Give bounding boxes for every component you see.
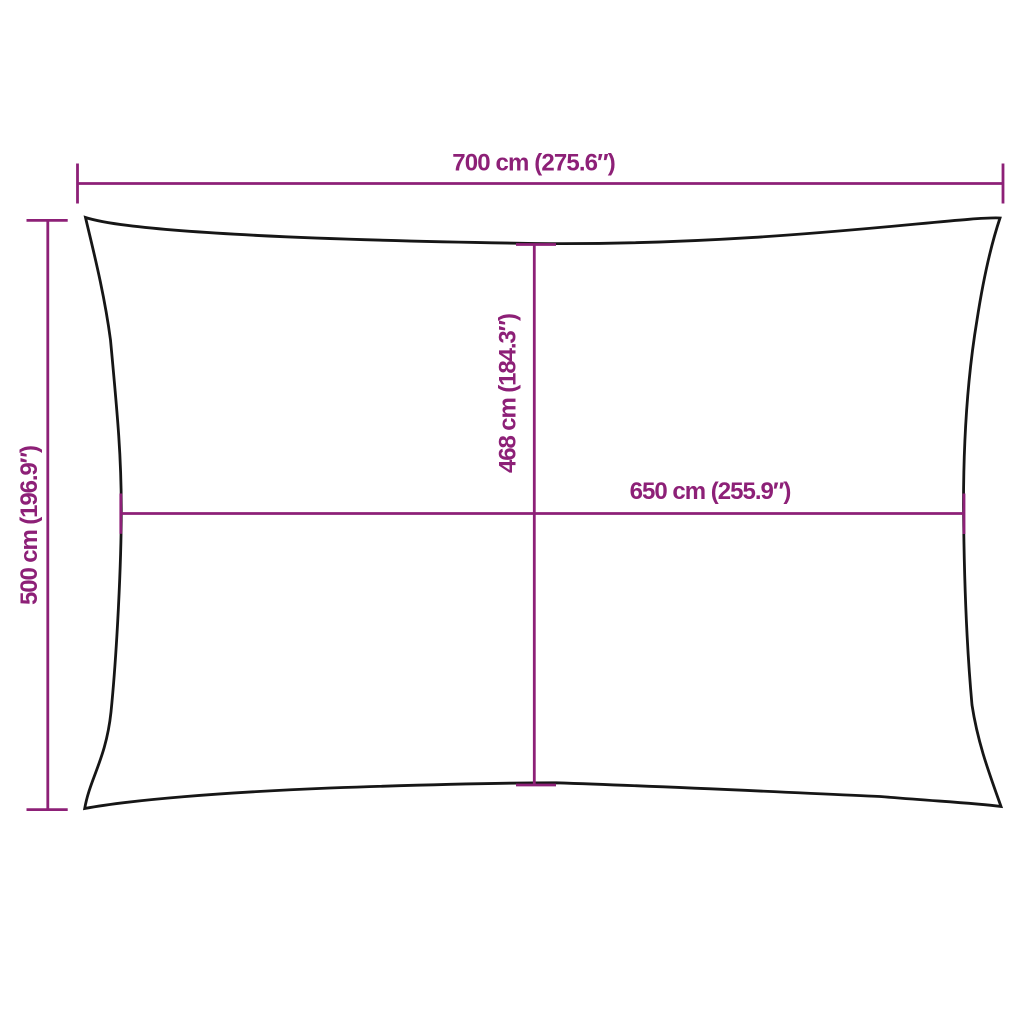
svg-text:650 cm (255.9″): 650 cm (255.9″) bbox=[630, 478, 792, 505]
svg-text:700 cm (275.6″): 700 cm (275.6″) bbox=[452, 150, 616, 177]
svg-text:468 cm (184.3″): 468 cm (184.3″) bbox=[495, 313, 522, 473]
svg-text:500 cm (196.9″): 500 cm (196.9″) bbox=[16, 445, 43, 605]
